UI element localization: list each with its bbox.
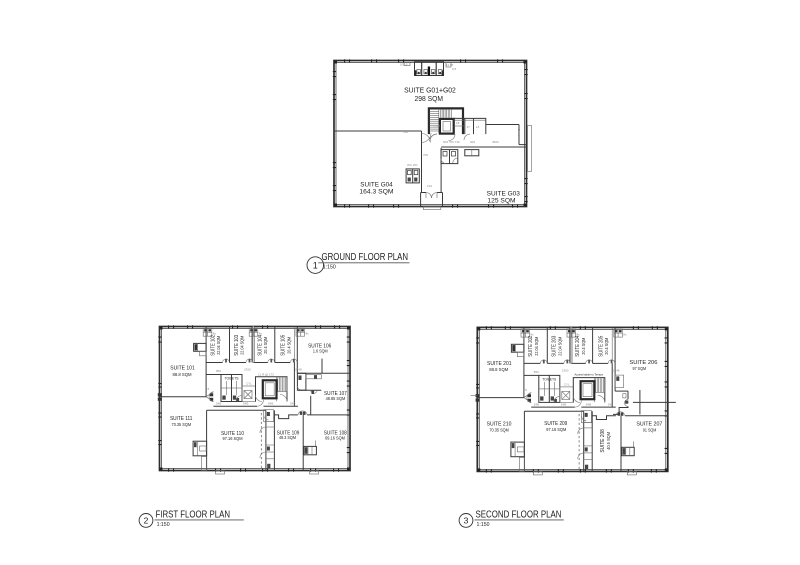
svg-text:1:150: 1:150 <box>157 522 170 528</box>
svg-text:SUITE G01+G02: SUITE G01+G02 <box>404 86 456 95</box>
svg-text:54B: 54B <box>608 402 613 406</box>
svg-text:2648: 2648 <box>295 368 302 372</box>
svg-text:20.4 SQM: 20.4 SQM <box>581 337 586 354</box>
svg-text:4500: 4500 <box>492 140 499 144</box>
svg-text:164.3 SQM: 164.3 SQM <box>359 189 393 196</box>
svg-text:2648: 2648 <box>613 368 620 372</box>
svg-text:20.4 SQM: 20.4 SQM <box>263 336 268 353</box>
svg-text:Access ladder to Terrace: Access ladder to Terrace <box>575 373 604 377</box>
svg-text:350: 350 <box>403 130 408 134</box>
svg-text:22.04 SQM: 22.04 SQM <box>557 336 562 355</box>
svg-text:2350: 2350 <box>562 368 569 372</box>
svg-text:FH·C: FH·C <box>517 128 521 136</box>
svg-text:298 SQM: 298 SQM <box>415 96 444 103</box>
svg-text:850: 850 <box>534 370 539 374</box>
svg-text:54B: 54B <box>268 402 273 406</box>
svg-text:20.4 SQM: 20.4 SQM <box>604 337 609 354</box>
svg-text:2: 2 <box>144 515 149 525</box>
svg-text:7 08: 7 08 <box>434 124 440 128</box>
svg-text:20.4 SQM: 20.4 SQM <box>286 336 291 353</box>
svg-text:54B: 54B <box>561 402 566 406</box>
svg-text:48.3 SQM: 48.3 SQM <box>279 435 296 440</box>
svg-text:69.16 SQM: 69.16 SQM <box>325 435 345 440</box>
svg-text:16: 16 <box>476 125 480 129</box>
svg-text:54B: 54B <box>534 402 539 406</box>
svg-text:1: 1 <box>313 260 318 270</box>
svg-text:54B: 54B <box>290 402 295 406</box>
svg-text:WC WC: WC WC <box>407 163 419 167</box>
svg-text:8s: 8s <box>623 332 627 336</box>
svg-text:TOILETS: TOILETS <box>542 377 557 381</box>
svg-text:850: 850 <box>216 369 221 373</box>
svg-text:70.35 SQM: 70.35 SQM <box>172 422 192 427</box>
svg-text:88.8 SQM: 88.8 SQM <box>173 372 192 377</box>
svg-text:700: 700 <box>423 153 428 157</box>
svg-text:97.16 SQM: 97.16 SQM <box>546 427 566 432</box>
svg-text:48.85 SQM: 48.85 SQM <box>326 396 346 401</box>
svg-text:97.16 SQM: 97.16 SQM <box>223 436 243 441</box>
svg-text:CYL: CYL <box>564 382 570 386</box>
svg-text:SUITE 101: SUITE 101 <box>170 366 195 372</box>
svg-text:SUITE G04: SUITE G04 <box>360 182 393 189</box>
svg-text:194: 194 <box>427 184 432 188</box>
svg-text:CYL: CYL <box>246 382 252 386</box>
svg-text:8s: 8s <box>306 332 310 336</box>
svg-text:1.6 SQM: 1.6 SQM <box>313 348 328 353</box>
svg-text:2350: 2350 <box>244 368 251 372</box>
svg-text:97 SQM: 97 SQM <box>633 366 647 371</box>
svg-text:FIRST FLOOR PLAN: FIRST FLOOR PLAN <box>156 510 231 521</box>
svg-text:3: 3 <box>464 515 469 525</box>
svg-text:54B: 54B <box>216 402 221 406</box>
svg-text:17: 17 <box>467 125 471 129</box>
svg-text:22.04 SQM: 22.04 SQM <box>216 335 221 354</box>
svg-text:40.5 SQM: 40.5 SQM <box>606 432 611 450</box>
svg-text:91 SQM: 91 SQM <box>643 428 657 433</box>
svg-text:18: 18 <box>456 121 460 125</box>
svg-text:SUITE 206: SUITE 206 <box>629 360 657 366</box>
svg-text:309: 309 <box>470 140 475 144</box>
svg-text:GROUND FLOOR PLAN: GROUND FLOOR PLAN <box>322 252 409 263</box>
svg-text:500 700 730: 500 700 730 <box>443 140 460 144</box>
svg-text:SUITE 207: SUITE 207 <box>636 421 662 427</box>
svg-text:TOILETS: TOILETS <box>224 377 239 381</box>
svg-text:9 8: 9 8 <box>452 67 457 71</box>
svg-text:70.35 SQM: 70.35 SQM <box>489 428 509 433</box>
svg-text:88.8 SQM: 88.8 SQM <box>489 367 508 372</box>
svg-text:22.04 SQM: 22.04 SQM <box>534 336 539 355</box>
svg-text:11 R @ 173: 11 R @ 173 <box>258 373 274 377</box>
svg-text:SUITE 201: SUITE 201 <box>487 361 512 367</box>
svg-text:SECOND FLOOR PLAN: SECOND FLOOR PLAN <box>476 510 562 521</box>
svg-text:1:150: 1:150 <box>477 522 490 528</box>
svg-text:1:150: 1:150 <box>323 265 336 271</box>
svg-text:54B: 54B <box>243 402 248 406</box>
svg-text:54B: 54B <box>586 402 591 406</box>
svg-text:125 SQM: 125 SQM <box>487 197 515 204</box>
svg-text:22.04 SQM: 22.04 SQM <box>240 335 245 354</box>
